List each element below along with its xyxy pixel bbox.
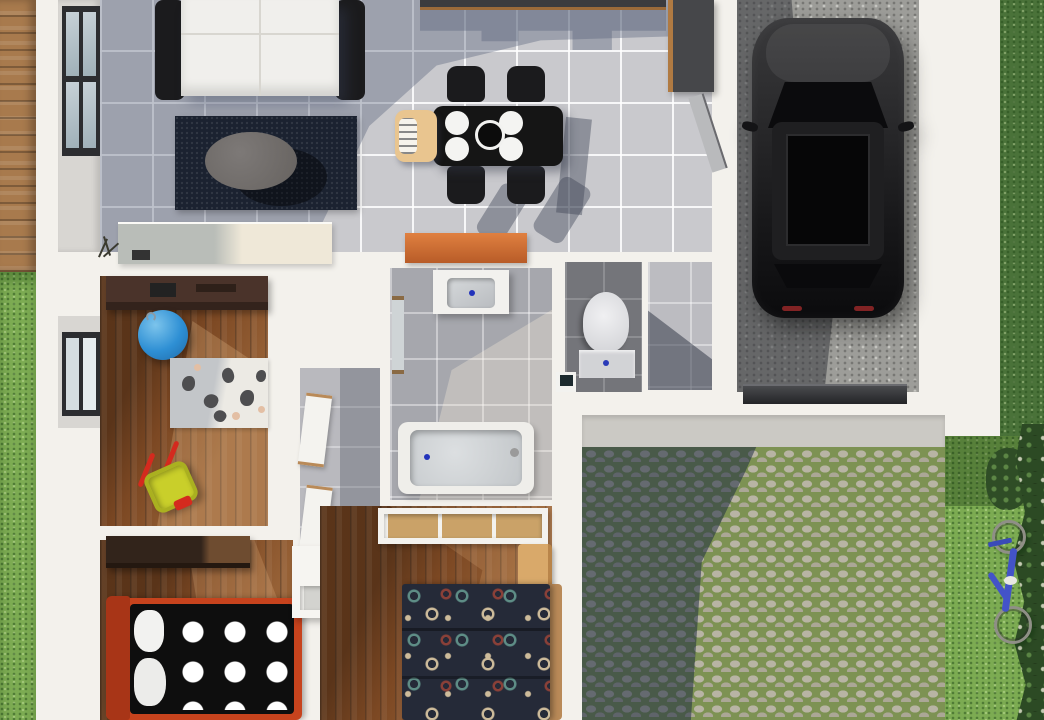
pillow xyxy=(134,610,164,652)
dining-chair xyxy=(447,166,485,204)
floorplan-render xyxy=(0,0,1044,720)
toilet-flush-button xyxy=(603,360,609,366)
wardrobe xyxy=(106,536,250,568)
kids-room-window xyxy=(62,332,100,416)
dining-table xyxy=(433,106,563,166)
kitchen-tall-cabinet xyxy=(668,0,714,92)
car-rear-window xyxy=(774,264,882,288)
wooden-deck xyxy=(0,0,36,272)
waste-bin-lid xyxy=(560,375,573,386)
closet-shelves xyxy=(384,514,542,538)
duvet-fold xyxy=(402,628,550,631)
patterned-bed xyxy=(402,584,562,720)
toy-wheelbarrow xyxy=(132,440,206,512)
car-sunroof xyxy=(786,134,870,246)
car xyxy=(752,18,904,318)
rug-dot-motif xyxy=(258,406,265,413)
window-pane xyxy=(66,338,79,410)
gym-ball-handle xyxy=(146,312,156,322)
bathtub-drain xyxy=(424,454,430,460)
entry-vestibule xyxy=(648,262,712,390)
rug-dot-motif xyxy=(232,412,240,420)
sofa xyxy=(155,0,365,100)
bicycle-seat xyxy=(1004,576,1017,585)
living-room-window xyxy=(62,6,100,156)
living-room-rug xyxy=(175,116,357,210)
duvet-polka-dots xyxy=(168,608,292,710)
rug-animal-motif xyxy=(256,370,266,382)
duvet-fold xyxy=(402,676,550,679)
window-pane xyxy=(66,12,79,76)
bicycle-wheel xyxy=(994,606,1032,644)
desk-item xyxy=(150,283,176,297)
kids-desk xyxy=(106,276,268,310)
orange-sideboard xyxy=(405,233,527,263)
sink-drain xyxy=(469,290,475,296)
garage-door-threshold xyxy=(743,384,907,404)
kitchen-counter xyxy=(420,0,666,10)
sideboard xyxy=(118,222,332,264)
dining-set xyxy=(395,60,585,220)
rug-animal-motif xyxy=(220,367,236,385)
rug-animal-motif xyxy=(202,392,220,410)
rug-dot-motif xyxy=(194,364,201,371)
dining-chair xyxy=(447,66,485,102)
rug-animal-motif xyxy=(182,376,195,391)
media-device xyxy=(132,250,150,260)
vestibule-shadow xyxy=(648,262,712,390)
plate xyxy=(445,137,469,161)
high-chair xyxy=(395,110,437,162)
toilet xyxy=(575,290,639,386)
rug-animal-motif xyxy=(240,390,254,406)
cushion-seam xyxy=(181,33,339,35)
plate xyxy=(445,111,469,135)
bed-duvet-patterned xyxy=(402,584,550,720)
rug-animal-motif xyxy=(212,408,229,425)
dining-chair xyxy=(507,166,545,204)
window-pane xyxy=(83,82,96,148)
centre-bowl xyxy=(475,120,505,150)
bathtub-faucet xyxy=(510,448,519,457)
patio-building-shadow xyxy=(582,447,945,720)
window-pane xyxy=(83,12,96,76)
bed-headboard xyxy=(106,596,130,720)
built-in-closet xyxy=(378,508,548,544)
cobblestone-patio xyxy=(582,447,945,720)
coffee-table xyxy=(205,132,297,190)
dining-chair xyxy=(507,66,545,102)
bed-frame-wood xyxy=(548,584,562,720)
window-pane xyxy=(83,338,96,410)
sofa-arm xyxy=(335,0,365,100)
car-taillight xyxy=(854,306,874,311)
high-chair-pad xyxy=(399,118,417,154)
toilet-bowl xyxy=(583,292,629,352)
twig-plant xyxy=(92,236,120,262)
bicycle xyxy=(978,512,1042,652)
window-pane xyxy=(66,82,79,148)
lawn-left xyxy=(0,272,36,720)
desk-item xyxy=(196,284,236,292)
car-taillight xyxy=(782,306,802,311)
lawn-right-shaded xyxy=(1000,0,1044,436)
cushion-seam xyxy=(259,0,261,96)
polka-dot-bed xyxy=(106,596,302,720)
animal-print-rug xyxy=(170,358,268,428)
pillow xyxy=(134,658,166,706)
bathroom-mirror xyxy=(392,296,404,374)
driveway-apron xyxy=(582,415,945,447)
car-hood xyxy=(766,24,890,82)
